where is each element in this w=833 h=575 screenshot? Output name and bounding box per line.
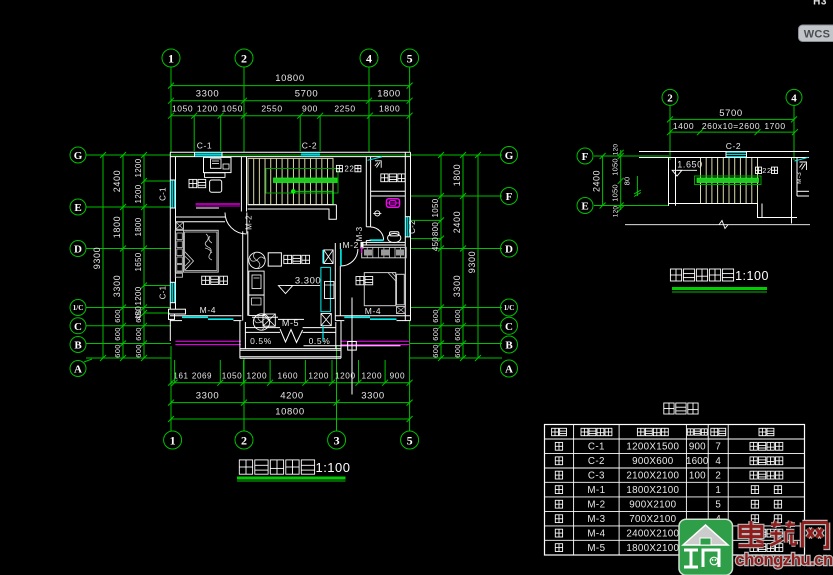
svg-text:5700: 5700: [719, 108, 743, 119]
svg-text:C-2: C-2: [588, 456, 605, 467]
svg-text:600: 600: [453, 309, 462, 322]
svg-text:1050: 1050: [611, 158, 620, 176]
svg-text:700X2100: 700X2100: [629, 514, 676, 525]
svg-text:600: 600: [134, 309, 143, 322]
svg-text:2: 2: [715, 470, 721, 481]
svg-text:600: 600: [134, 327, 143, 340]
svg-text:1800: 1800: [134, 217, 143, 236]
svg-text:0.5%: 0.5%: [250, 336, 272, 346]
svg-text:1:100: 1:100: [735, 269, 769, 283]
svg-text:M-5: M-5: [587, 543, 605, 554]
svg-text:3.300: 3.300: [295, 276, 321, 287]
svg-text:C-1: C-1: [197, 141, 213, 151]
svg-text:1200: 1200: [246, 372, 267, 381]
svg-text:5: 5: [407, 51, 413, 65]
svg-text:3300: 3300: [361, 391, 385, 402]
svg-text:M-5: M-5: [282, 318, 299, 328]
svg-text:M-2: M-2: [342, 240, 358, 250]
svg-text:600: 600: [453, 327, 462, 340]
svg-text:900X2100: 900X2100: [629, 500, 676, 511]
svg-text:1650: 1650: [134, 252, 143, 271]
svg-text:H3: H3: [813, 0, 827, 8]
svg-text:2069: 2069: [192, 372, 212, 381]
svg-text:1/C: 1/C: [73, 304, 84, 312]
svg-text:1: 1: [168, 51, 174, 65]
svg-text:M-4: M-4: [365, 306, 381, 316]
svg-text:900: 900: [390, 372, 405, 381]
svg-text:4: 4: [791, 92, 797, 104]
svg-text:4200: 4200: [280, 391, 304, 402]
svg-text:M-2: M-2: [587, 500, 605, 511]
svg-text:1800X2100: 1800X2100: [626, 485, 679, 496]
svg-text:1/C: 1/C: [504, 304, 515, 312]
svg-text:120: 120: [613, 144, 620, 156]
svg-text:2: 2: [241, 51, 247, 65]
svg-text:80: 80: [623, 177, 632, 186]
svg-text:450: 450: [431, 237, 440, 251]
svg-text:1200: 1200: [197, 104, 218, 114]
svg-text:C-2: C-2: [302, 141, 318, 151]
svg-text:4: 4: [715, 456, 721, 467]
svg-text:E: E: [581, 200, 588, 212]
svg-text:1050: 1050: [172, 104, 193, 114]
svg-text:2100X2100: 2100X2100: [626, 470, 679, 481]
svg-text:B: B: [74, 339, 82, 351]
svg-text:0.5%: 0.5%: [309, 336, 331, 346]
svg-text:1600: 1600: [277, 372, 298, 381]
svg-text:1800: 1800: [112, 216, 122, 238]
svg-text:2: 2: [667, 92, 673, 104]
svg-text:M-3: M-3: [796, 172, 803, 184]
svg-text:260x10=2600: 260x10=2600: [702, 121, 760, 131]
svg-text:5700: 5700: [295, 89, 319, 100]
svg-text:1200: 1200: [361, 372, 382, 381]
svg-text:2250: 2250: [334, 104, 355, 114]
svg-text:600: 600: [134, 344, 143, 357]
svg-text:3300: 3300: [196, 89, 220, 100]
svg-text:2400X2100: 2400X2100: [626, 528, 679, 539]
svg-text:WCS: WCS: [804, 28, 831, 40]
svg-text:1050: 1050: [431, 198, 440, 217]
svg-text:600: 600: [431, 344, 440, 357]
svg-text:M-2: M-2: [245, 215, 254, 230]
svg-text:1: 1: [715, 485, 721, 496]
svg-text:1400: 1400: [673, 121, 694, 131]
svg-text:F: F: [582, 151, 589, 163]
svg-text:A: A: [74, 363, 82, 375]
svg-text:C-2: C-2: [408, 220, 417, 234]
svg-text:600: 600: [113, 327, 122, 340]
svg-text:C: C: [74, 321, 82, 333]
svg-text:G: G: [505, 150, 514, 162]
svg-text:1050: 1050: [222, 104, 243, 114]
svg-text:600: 600: [431, 309, 440, 322]
svg-text:2400: 2400: [112, 170, 122, 192]
svg-text:1800: 1800: [452, 164, 462, 186]
svg-text:1200X1500: 1200X1500: [626, 442, 679, 453]
svg-text:4: 4: [366, 51, 372, 65]
svg-text:3300: 3300: [196, 391, 220, 402]
svg-text:1800X2100: 1800X2100: [626, 543, 679, 554]
svg-text:E: E: [74, 202, 81, 214]
svg-text:1600: 1600: [686, 456, 709, 467]
svg-text:1050: 1050: [222, 372, 243, 381]
svg-text:D: D: [74, 243, 82, 255]
svg-text:F: F: [506, 191, 513, 203]
svg-text:9300: 9300: [92, 247, 102, 269]
svg-text:1200: 1200: [134, 158, 143, 177]
svg-text:900: 900: [689, 442, 706, 453]
svg-text:M-4: M-4: [587, 528, 605, 539]
svg-text:C-2: C-2: [726, 141, 742, 151]
svg-text:M-3: M-3: [587, 514, 605, 525]
svg-text:1700: 1700: [764, 121, 785, 131]
svg-text:D: D: [505, 243, 513, 255]
svg-text:1200: 1200: [134, 184, 143, 203]
svg-text:120: 120: [613, 206, 620, 218]
svg-text:C-1: C-1: [588, 442, 605, 453]
svg-text:600: 600: [431, 327, 440, 340]
svg-text:5: 5: [715, 500, 721, 511]
svg-text:2: 2: [241, 433, 247, 447]
svg-text:1200: 1200: [335, 372, 356, 381]
svg-text:800: 800: [431, 222, 440, 236]
svg-text:3: 3: [334, 433, 340, 447]
svg-text:3300: 3300: [112, 275, 122, 297]
svg-text:600: 600: [453, 344, 462, 357]
svg-text:22: 22: [762, 166, 772, 175]
svg-text:G: G: [74, 150, 83, 162]
svg-text:1800: 1800: [377, 89, 401, 100]
svg-text:2550: 2550: [261, 104, 282, 114]
svg-text:161: 161: [173, 372, 188, 381]
svg-text:1050: 1050: [611, 184, 620, 202]
svg-text:chongzhu.cn: chongzhu.cn: [735, 550, 833, 569]
svg-text:M-4: M-4: [200, 305, 216, 315]
svg-text:10800: 10800: [275, 73, 304, 84]
svg-text:600: 600: [113, 309, 122, 322]
svg-text:M-1: M-1: [587, 485, 605, 496]
svg-text:1200: 1200: [308, 372, 329, 381]
svg-text:2400: 2400: [452, 211, 462, 233]
svg-text:100: 100: [689, 470, 706, 481]
svg-text:7: 7: [715, 442, 721, 453]
svg-text:2400: 2400: [592, 170, 602, 192]
svg-text:B: B: [505, 339, 513, 351]
svg-text:22: 22: [344, 164, 354, 173]
svg-text:1200: 1200: [134, 286, 143, 305]
svg-text:1.650: 1.650: [677, 160, 703, 170]
svg-text:A: A: [505, 363, 513, 375]
svg-text:C-3: C-3: [588, 470, 605, 481]
svg-text:900X600: 900X600: [632, 456, 674, 467]
svg-text:1: 1: [170, 433, 176, 447]
svg-text:C-1: C-1: [159, 285, 168, 299]
svg-text:1800: 1800: [379, 104, 400, 114]
svg-text:C-1: C-1: [159, 187, 168, 201]
svg-text:5: 5: [407, 433, 413, 447]
svg-text:600: 600: [113, 344, 122, 357]
svg-text:9300: 9300: [467, 251, 477, 273]
svg-text:3300: 3300: [452, 275, 462, 297]
svg-text:900: 900: [302, 104, 318, 114]
svg-text:1:100: 1:100: [315, 460, 350, 475]
svg-text:C: C: [505, 321, 513, 333]
svg-text:10800: 10800: [275, 407, 304, 418]
